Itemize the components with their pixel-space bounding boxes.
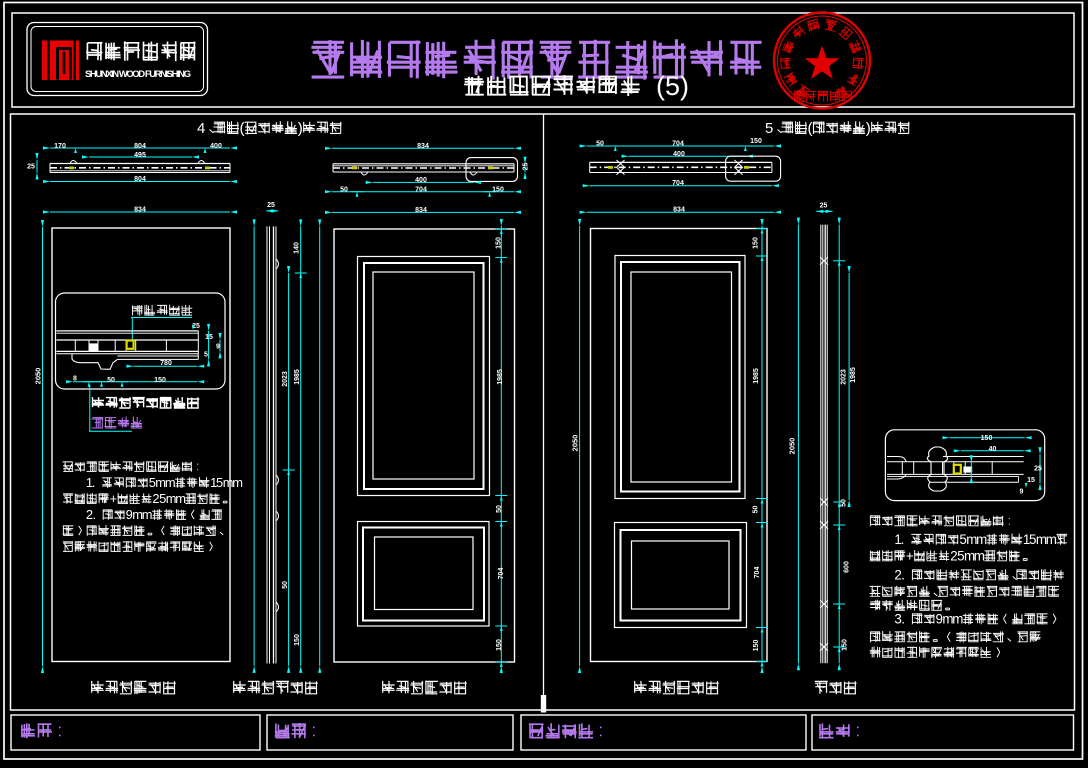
svg-text:+: + — [906, 548, 914, 563]
svg-text:9: 9 — [216, 343, 220, 350]
svg-text:400: 400 — [673, 151, 685, 158]
svg-text:704: 704 — [754, 567, 761, 579]
svg-text:704: 704 — [498, 568, 505, 580]
svg-text:150: 150 — [495, 237, 502, 249]
svg-text:704: 704 — [415, 186, 427, 193]
svg-text:600: 600 — [843, 561, 850, 573]
svg-text:): ) — [866, 120, 871, 137]
svg-text:5: 5 — [765, 120, 773, 137]
svg-text:150: 150 — [294, 634, 301, 646]
svg-text:15: 15 — [205, 334, 213, 341]
svg-text:50: 50 — [282, 581, 289, 589]
svg-text:4: 4 — [197, 120, 205, 137]
svg-text:150: 150 — [753, 640, 760, 652]
svg-text:25: 25 — [820, 202, 828, 209]
svg-text:2023: 2023 — [282, 371, 289, 387]
svg-text:9: 9 — [1020, 488, 1024, 495]
svg-text:(: ( — [808, 120, 813, 137]
svg-text:+: + — [110, 491, 118, 506]
svg-text:2050: 2050 — [571, 435, 580, 452]
svg-text:150: 150 — [154, 377, 166, 384]
svg-text:2050: 2050 — [34, 368, 43, 385]
svg-text:140: 140 — [294, 242, 301, 254]
svg-text:804: 804 — [134, 143, 146, 150]
svg-text:25: 25 — [522, 163, 529, 171]
svg-text:.: . — [901, 567, 905, 582]
svg-text:2023: 2023 — [840, 369, 847, 385]
svg-text:.: . — [901, 611, 905, 626]
svg-text:704: 704 — [672, 140, 684, 147]
svg-text:150: 150 — [750, 138, 762, 145]
svg-text:25: 25 — [27, 163, 35, 170]
svg-text:m: m — [165, 475, 176, 490]
svg-text:150: 150 — [841, 639, 848, 651]
svg-text:m: m — [976, 532, 987, 547]
svg-text:1985: 1985 — [497, 369, 504, 385]
svg-text:40: 40 — [989, 446, 997, 453]
svg-text:.: . — [93, 507, 97, 522]
svg-text:834: 834 — [417, 143, 429, 150]
svg-text:50: 50 — [496, 505, 503, 513]
svg-text:834: 834 — [673, 206, 685, 213]
svg-text:8: 8 — [73, 375, 77, 382]
svg-text:50: 50 — [596, 140, 604, 147]
svg-text:m: m — [952, 611, 963, 626]
svg-text:m: m — [232, 475, 243, 490]
svg-text:1985: 1985 — [753, 368, 760, 384]
svg-text:704: 704 — [672, 180, 684, 187]
svg-text:804: 804 — [134, 176, 146, 183]
svg-text:5: 5 — [204, 351, 208, 358]
svg-text:495: 495 — [134, 152, 146, 159]
svg-text:150: 150 — [492, 186, 504, 193]
svg-text:150: 150 — [496, 639, 503, 651]
svg-text:50: 50 — [340, 186, 348, 193]
svg-text:50: 50 — [840, 499, 847, 507]
svg-text:150: 150 — [981, 435, 993, 442]
svg-text:25: 25 — [1034, 465, 1042, 472]
svg-text:25: 25 — [267, 202, 275, 209]
svg-text:15: 15 — [1027, 477, 1035, 484]
svg-text:400: 400 — [210, 143, 222, 150]
svg-text:400: 400 — [415, 177, 427, 184]
svg-text:1985: 1985 — [294, 369, 301, 385]
svg-text:50: 50 — [107, 377, 115, 384]
svg-text:(5): (5) — [656, 71, 689, 101]
svg-text:150: 150 — [752, 237, 759, 249]
svg-text:m: m — [974, 548, 985, 563]
svg-text:2050: 2050 — [788, 438, 797, 455]
svg-text:(: ( — [240, 120, 245, 137]
svg-text:m: m — [142, 507, 153, 522]
svg-text:): ) — [298, 120, 303, 137]
svg-text:m: m — [1046, 532, 1057, 547]
svg-text:.: . — [901, 532, 905, 547]
svg-text:834: 834 — [134, 206, 146, 213]
svg-text:SHUNXIN WOOD FURNISHING: SHUNXIN WOOD FURNISHING — [85, 69, 191, 80]
svg-text:1985: 1985 — [850, 367, 857, 383]
svg-text:m: m — [175, 491, 186, 506]
svg-text:780: 780 — [160, 360, 172, 367]
svg-text:834: 834 — [415, 207, 427, 214]
svg-text:170: 170 — [54, 143, 66, 150]
svg-text:50: 50 — [752, 506, 759, 514]
svg-text:.: . — [92, 475, 96, 490]
